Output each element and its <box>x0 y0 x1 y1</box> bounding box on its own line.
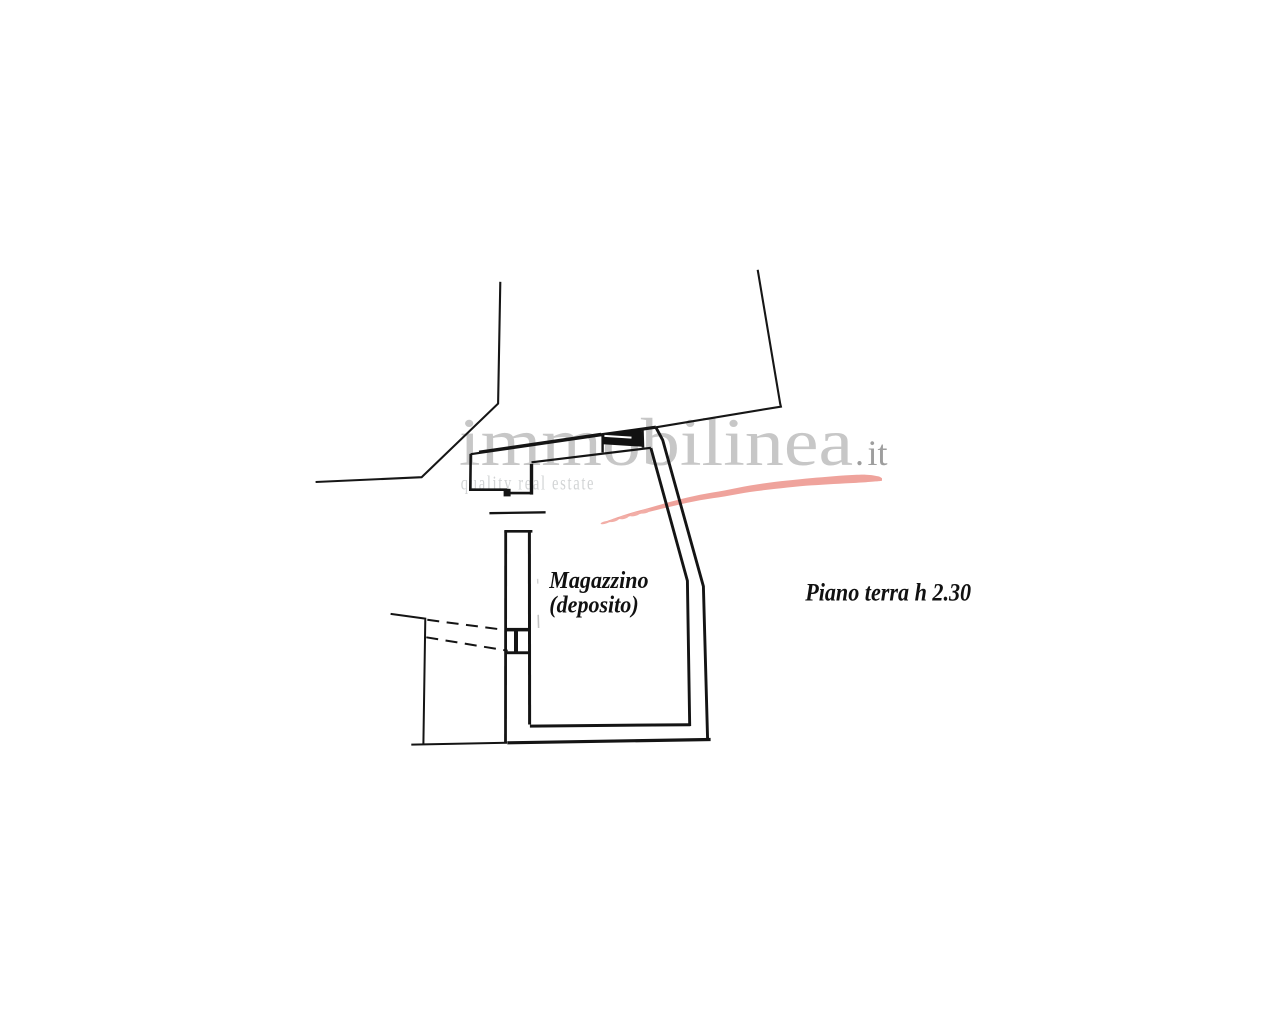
svg-text:.: . <box>855 433 864 473</box>
svg-text:it: it <box>868 433 888 473</box>
svg-text:Piano terra h 2.30: Piano terra h 2.30 <box>804 579 971 607</box>
svg-text:Magazzino: Magazzino <box>548 567 648 594</box>
svg-text:(deposito): (deposito) <box>549 591 638 618</box>
